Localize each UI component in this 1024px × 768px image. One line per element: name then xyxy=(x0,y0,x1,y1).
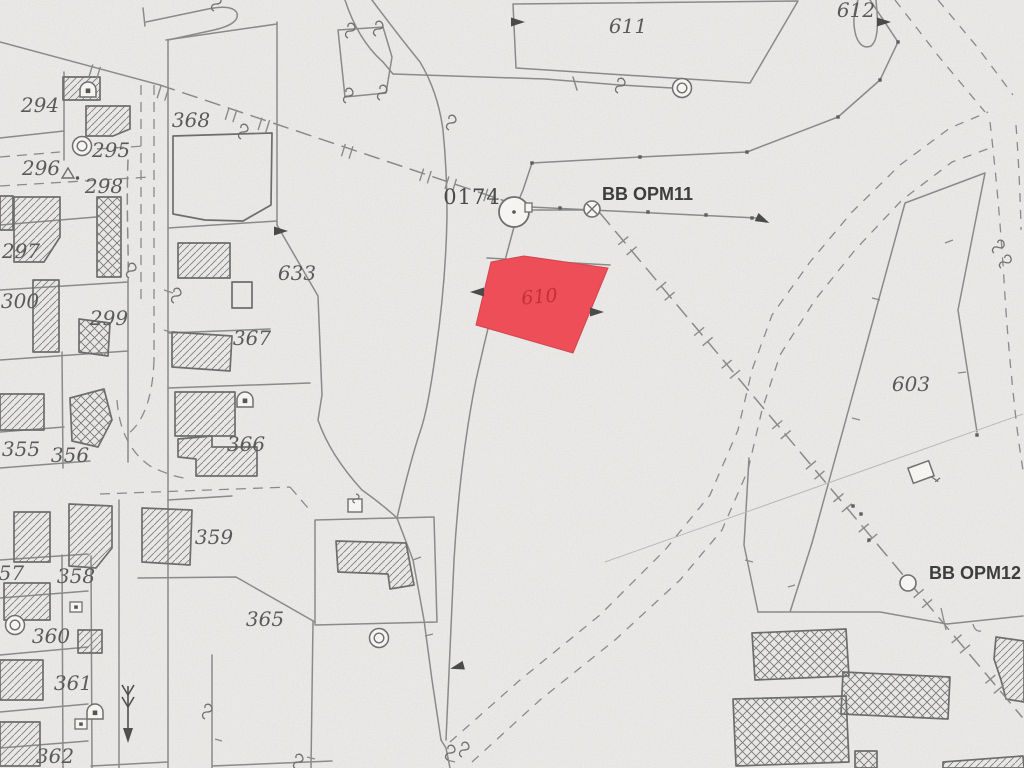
parcel-label-295: 295 xyxy=(91,138,130,162)
square-dot-icon xyxy=(70,602,82,612)
well-circle-icon xyxy=(73,137,92,156)
parcel-label-360: 360 xyxy=(32,624,70,648)
parcel-label-358: 358 xyxy=(57,564,95,588)
parcel-label-633: 633 xyxy=(278,261,316,285)
paper-grain-texture xyxy=(0,0,1024,768)
parcel-label-355: 355 xyxy=(2,437,40,461)
parcel-label-297: 297 xyxy=(1,239,40,263)
arch-dot-icon xyxy=(237,392,253,407)
parcel-label-356: 356 xyxy=(51,443,89,467)
parcel-label-603: 603 xyxy=(892,372,930,396)
arch-dot-icon xyxy=(87,704,103,719)
parcel-label-359: 359 xyxy=(195,525,233,549)
parcel-label-368: 368 xyxy=(172,108,210,132)
line-circle-icon xyxy=(900,575,916,591)
parcel-label-365: 365 xyxy=(246,607,284,631)
parcel-label-300: 300 xyxy=(1,289,39,313)
survey-point-label: 0174 xyxy=(443,185,500,209)
opm-marker-label-1: BB OPM11 xyxy=(602,184,693,204)
square-dot-icon xyxy=(75,719,87,729)
well-circle-icon xyxy=(673,79,692,98)
highlighted-parcel-label: 610 xyxy=(520,284,558,309)
arch-dot-icon xyxy=(80,82,96,97)
crossed-circle-icon xyxy=(584,201,600,217)
cadastral-map: 2942952962982973002993686333673663553563… xyxy=(0,0,1024,768)
parcel-label-298: 298 xyxy=(84,174,123,198)
parcel-label-357: 357 xyxy=(0,561,24,585)
parcel-label-294: 294 xyxy=(20,93,59,117)
parcel-label-296: 296 xyxy=(21,156,60,180)
parcel-label-362: 362 xyxy=(36,744,74,768)
well-circle-icon xyxy=(370,629,389,648)
parcel-label-367: 367 xyxy=(233,326,271,350)
parcel-label-299: 299 xyxy=(89,306,128,330)
well-circle-icon xyxy=(6,616,25,635)
parcel-label-366: 366 xyxy=(227,432,265,456)
opm-marker-label-2: BB OPM12 xyxy=(929,563,1021,583)
parcel-label-612: 612 xyxy=(837,0,875,22)
cadastral-map-viewport: 2942952962982973002993686333673663553563… xyxy=(0,0,1024,768)
parcel-label-611: 611 xyxy=(609,14,647,38)
parcel-label-361: 361 xyxy=(54,671,92,695)
